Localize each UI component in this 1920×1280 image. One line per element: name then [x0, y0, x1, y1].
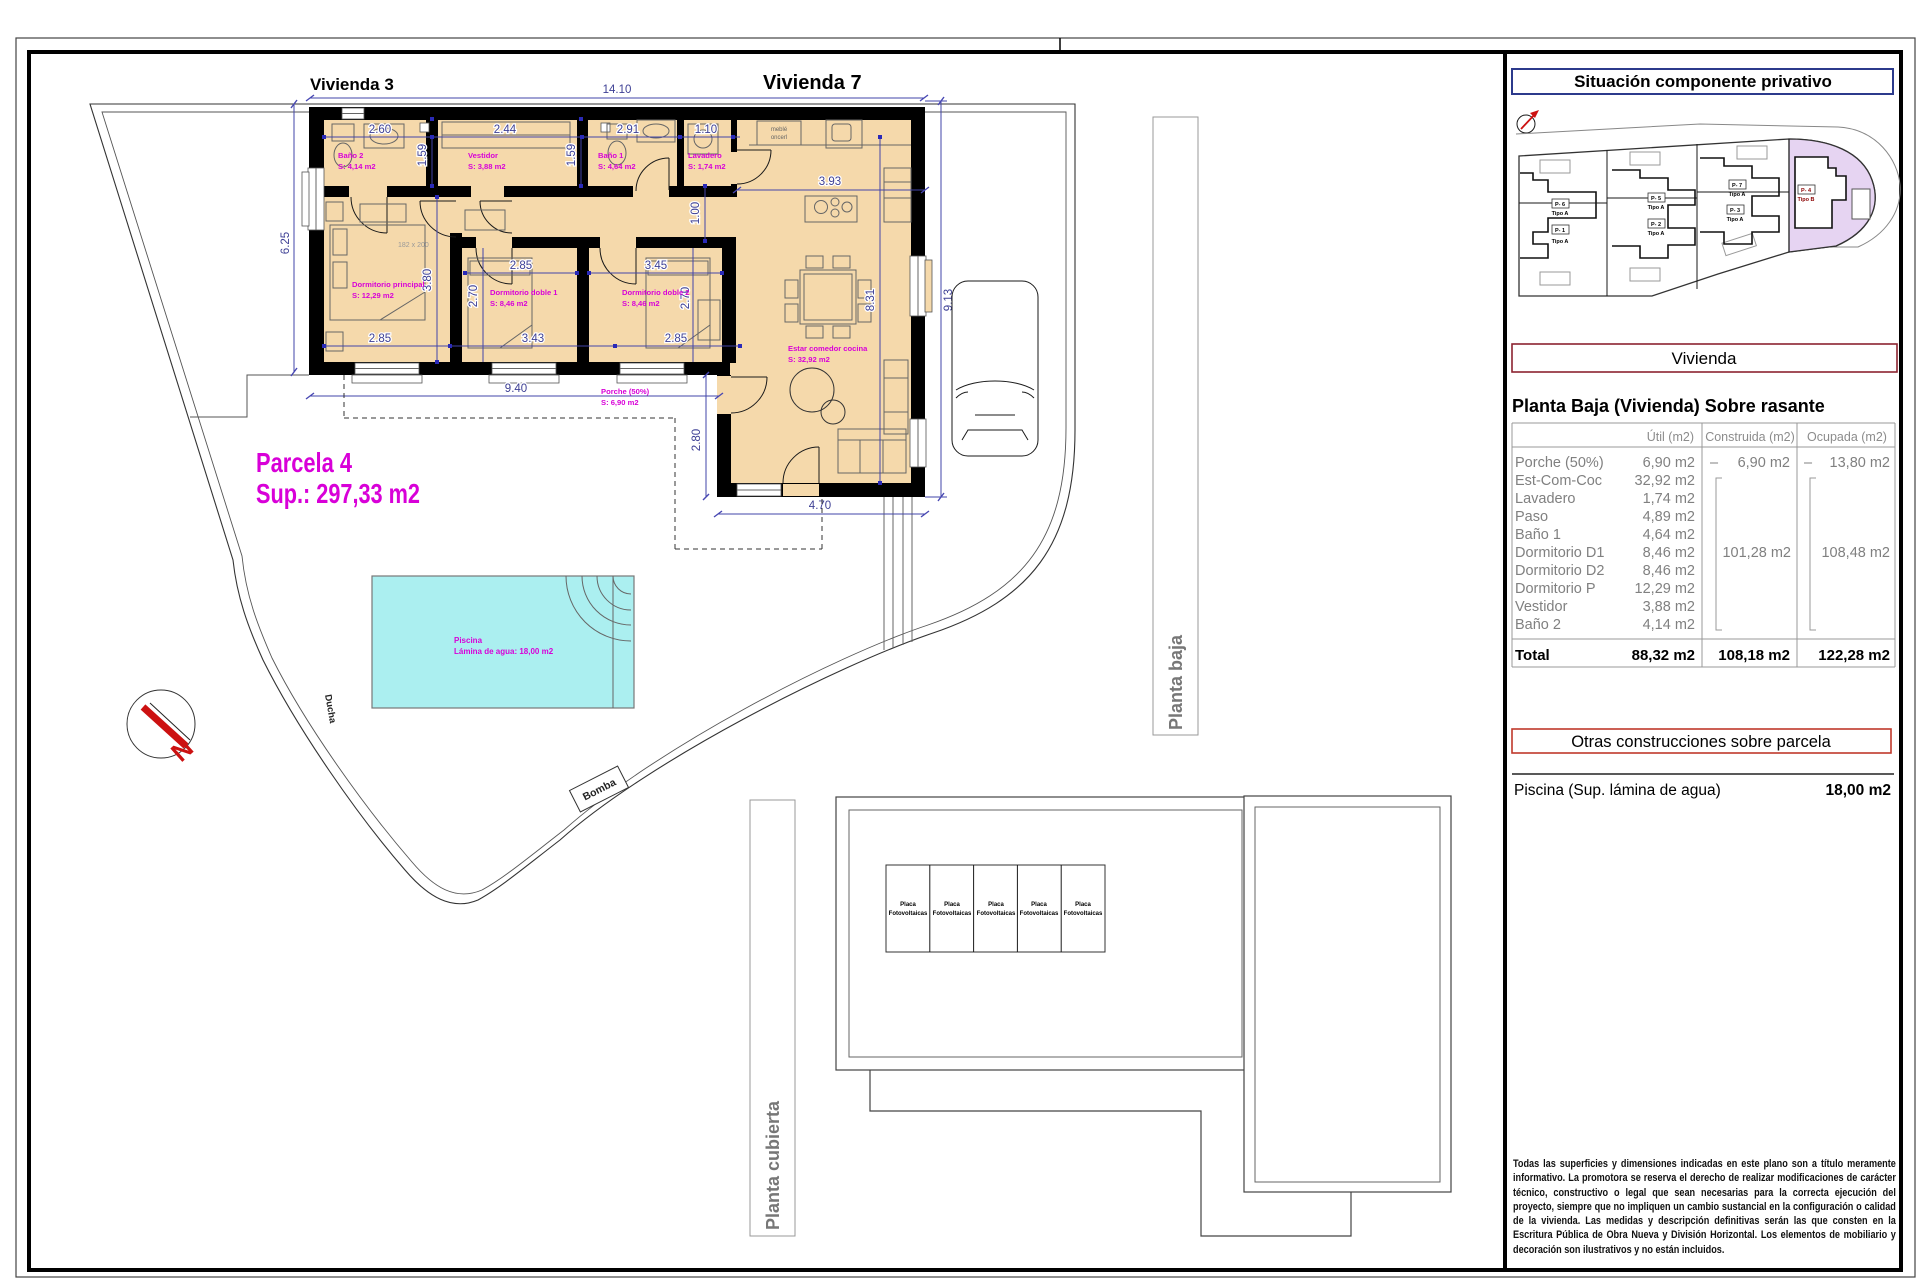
svg-text:2.70: 2.70	[468, 285, 480, 307]
svg-text:122,28 m2: 122,28 m2	[1818, 647, 1890, 664]
svg-text:Vestidor: Vestidor	[468, 151, 498, 160]
svg-text:Planta baja: Planta baja	[1166, 634, 1186, 730]
svg-text:Fotovoltaicas: Fotovoltaicas	[977, 911, 1016, 917]
svg-text:12,29 m2: 12,29 m2	[1635, 581, 1695, 597]
svg-text:Dormitorio doble 1: Dormitorio doble 1	[490, 288, 558, 297]
svg-text:Tipo A: Tipo A	[1552, 239, 1569, 245]
svg-text:Porche (50%): Porche (50%)	[601, 387, 650, 396]
svg-text:8,46 m2: 8,46 m2	[1643, 545, 1695, 561]
svg-text:P- 6: P- 6	[1555, 202, 1565, 208]
svg-text:Dormitorio doble 2: Dormitorio doble 2	[622, 288, 690, 297]
svg-text:Otras construcciones sobre par: Otras construcciones sobre parcela	[1571, 733, 1831, 751]
svg-text:Tipo A: Tipo A	[1729, 192, 1746, 198]
svg-text:2.60: 2.60	[369, 124, 391, 136]
svg-text:Placa: Placa	[1031, 902, 1047, 908]
svg-text:Vivienda: Vivienda	[1672, 349, 1737, 368]
svg-text:Piscina: Piscina	[454, 636, 483, 645]
svg-text:3.45: 3.45	[645, 260, 667, 272]
svg-text:88,32 m2: 88,32 m2	[1632, 647, 1695, 664]
svg-text:Ducha: Ducha	[322, 694, 338, 725]
svg-text:Vestidor: Vestidor	[1515, 599, 1568, 615]
svg-text:Piscina (Sup. lámina de agua): Piscina (Sup. lámina de agua)	[1514, 782, 1721, 799]
svg-text:1.10: 1.10	[695, 124, 717, 136]
svg-text:2.44: 2.44	[494, 124, 517, 136]
svg-text:4,89 m2: 4,89 m2	[1643, 509, 1695, 525]
svg-text:Vivienda 7: Vivienda 7	[763, 72, 862, 94]
svg-text:P- 4: P- 4	[1801, 188, 1812, 194]
svg-text:Total: Total	[1515, 647, 1550, 664]
svg-text:Parcela 4: Parcela 4	[256, 447, 352, 478]
svg-text:Planta Baja (Vivienda) Sobre r: Planta Baja (Vivienda) Sobre rasante	[1512, 396, 1825, 416]
svg-text:N: N	[165, 733, 199, 768]
svg-text:Vivienda 3: Vivienda 3	[310, 75, 394, 94]
svg-text:Lavadero: Lavadero	[1515, 491, 1575, 507]
svg-text:Lavadero: Lavadero	[688, 151, 722, 160]
svg-text:Placa: Placa	[1075, 902, 1091, 908]
svg-text:S: 8,46 m2: S: 8,46 m2	[490, 299, 528, 308]
svg-text:Útil (m2): Útil (m2)	[1647, 429, 1694, 444]
svg-text:Fotovoltaicas: Fotovoltaicas	[1020, 911, 1059, 917]
svg-text:Planta cubierta: Planta cubierta	[763, 1100, 783, 1230]
svg-text:P- 7: P- 7	[1732, 183, 1742, 189]
svg-text:S: 8,46 m2: S: 8,46 m2	[622, 299, 660, 308]
svg-text:Tipo A: Tipo A	[1648, 231, 1665, 237]
svg-text:Paso: Paso	[1515, 509, 1548, 525]
svg-text:2.80: 2.80	[691, 429, 703, 451]
svg-text:Estar comedor cocina: Estar comedor cocina	[788, 344, 868, 353]
svg-text:8.31: 8.31	[865, 289, 877, 311]
svg-text:1.59: 1.59	[417, 144, 429, 166]
svg-text:2.85: 2.85	[665, 333, 687, 345]
svg-text:Est-Com-Coc: Est-Com-Coc	[1515, 473, 1602, 489]
svg-text:4.70: 4.70	[809, 500, 831, 512]
svg-text:Placa: Placa	[944, 902, 960, 908]
svg-text:2.85: 2.85	[369, 333, 391, 345]
svg-text:32,92 m2: 32,92 m2	[1635, 473, 1695, 489]
svg-text:P- 2: P- 2	[1651, 222, 1661, 228]
svg-text:14.10: 14.10	[603, 84, 632, 96]
svg-text:Situación componente privativo: Situación componente privativo	[1574, 72, 1832, 91]
svg-text:S: 4,64 m2: S: 4,64 m2	[598, 162, 636, 171]
svg-text:182 x 200: 182 x 200	[398, 242, 429, 249]
svg-text:8,46 m2: 8,46 m2	[1643, 563, 1695, 579]
svg-text:Construida (m2): Construida (m2)	[1705, 430, 1795, 444]
svg-text:108,18 m2: 108,18 m2	[1718, 647, 1790, 664]
svg-text:Fotovoltaicas: Fotovoltaicas	[933, 911, 972, 917]
svg-text:–: –	[1804, 455, 1813, 471]
svg-text:oncerl: oncerl	[771, 135, 787, 141]
svg-text:6,90 m2: 6,90 m2	[1738, 455, 1790, 471]
svg-text:Tipo A: Tipo A	[1727, 217, 1744, 223]
svg-text:–: –	[1710, 455, 1719, 471]
svg-text:2.91: 2.91	[617, 124, 639, 136]
svg-text:4,14 m2: 4,14 m2	[1643, 617, 1695, 633]
svg-text:P- 3: P- 3	[1730, 208, 1740, 214]
svg-text:Porche (50%): Porche (50%)	[1515, 455, 1604, 471]
svg-text:Fotovoltaicas: Fotovoltaicas	[1064, 911, 1103, 917]
svg-text:Fotovoltaicas: Fotovoltaicas	[889, 911, 928, 917]
svg-text:Placa: Placa	[900, 902, 916, 908]
svg-text:Ocupada (m2): Ocupada (m2)	[1807, 430, 1887, 444]
svg-text:Baño 2: Baño 2	[338, 151, 363, 160]
svg-text:Dormitorio D2: Dormitorio D2	[1515, 563, 1604, 579]
svg-text:3,88 m2: 3,88 m2	[1643, 599, 1695, 615]
svg-text:S: 32,92 m2: S: 32,92 m2	[788, 355, 830, 364]
svg-text:Baño 1: Baño 1	[598, 151, 624, 160]
svg-text:4,64 m2: 4,64 m2	[1643, 527, 1695, 543]
svg-text:6,90 m2: 6,90 m2	[1643, 455, 1695, 471]
svg-text:Tipo A: Tipo A	[1648, 205, 1665, 211]
svg-text:S: 3,88 m2: S: 3,88 m2	[468, 162, 506, 171]
svg-text:6.25: 6.25	[280, 232, 292, 254]
svg-text:P- 5: P- 5	[1651, 196, 1661, 202]
svg-text:S: 1,74 m2: S: 1,74 m2	[688, 162, 726, 171]
svg-text:2.85: 2.85	[510, 260, 532, 272]
svg-text:9.40: 9.40	[505, 383, 527, 395]
svg-text:Baño 1: Baño 1	[1515, 527, 1561, 543]
svg-text:Dormitorio principal: Dormitorio principal	[352, 280, 425, 289]
svg-text:P- 1: P- 1	[1555, 228, 1565, 234]
svg-text:13,80 m2: 13,80 m2	[1830, 455, 1890, 471]
svg-text:Dormitorio D1: Dormitorio D1	[1515, 545, 1604, 561]
svg-text:meblé: meblé	[771, 127, 788, 133]
svg-text:3.43: 3.43	[522, 333, 544, 345]
svg-text:18,00 m2: 18,00 m2	[1826, 782, 1892, 799]
svg-text:S: 12,29 m2: S: 12,29 m2	[352, 291, 394, 300]
svg-text:Tipo A: Tipo A	[1552, 211, 1569, 217]
svg-text:Lámina de agua: 18,00 m2: Lámina de agua: 18,00 m2	[454, 647, 554, 656]
svg-text:Placa: Placa	[988, 902, 1004, 908]
svg-text:1,74 m2: 1,74 m2	[1643, 491, 1695, 507]
svg-text:Baño 2: Baño 2	[1515, 617, 1561, 633]
svg-text:Tipo B: Tipo B	[1797, 197, 1814, 203]
svg-text:S: 4,14 m2: S: 4,14 m2	[338, 162, 376, 171]
svg-text:Sup.: 297,33 m2: Sup.: 297,33 m2	[256, 478, 420, 509]
svg-text:1.00: 1.00	[690, 202, 702, 224]
svg-text:108,48 m2: 108,48 m2	[1821, 545, 1890, 561]
svg-text:1.59: 1.59	[566, 144, 578, 166]
svg-text:101,28 m2: 101,28 m2	[1722, 545, 1791, 561]
svg-text:Dormitorio P: Dormitorio P	[1515, 581, 1596, 597]
svg-text:S: 6,90 m2: S: 6,90 m2	[601, 398, 639, 407]
svg-text:3.93: 3.93	[819, 176, 841, 188]
